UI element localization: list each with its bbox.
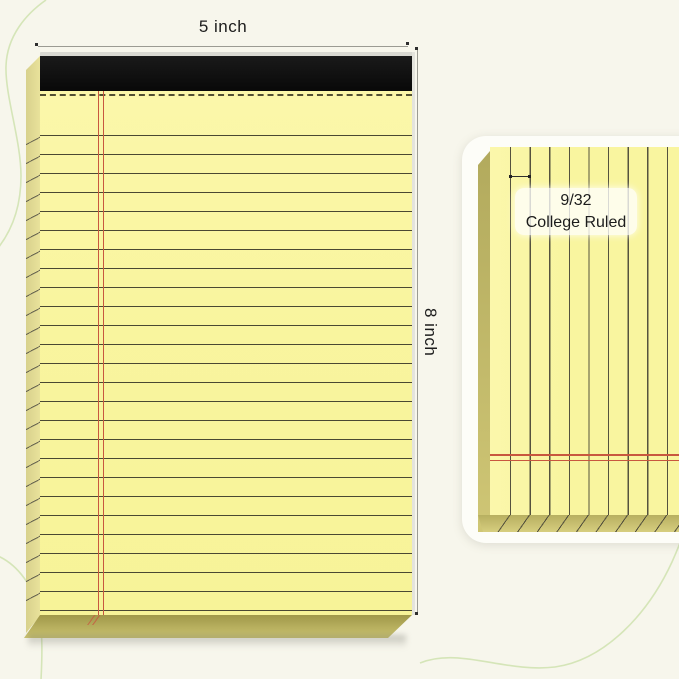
- spacing-dimension-end-right: [528, 175, 531, 178]
- pad-shadow: [28, 635, 406, 648]
- margin-line-right: [103, 91, 105, 615]
- height-dimension-line: [417, 49, 418, 615]
- margin-line-left: [98, 91, 100, 615]
- width-dimension-label: 5 inch: [38, 17, 408, 37]
- ruling-fraction-text: 9/32: [515, 190, 637, 212]
- page-stack-rule-ticks: [26, 135, 40, 608]
- perforation-line: [40, 94, 412, 96]
- decor-curve-bottom-right: [420, 543, 679, 668]
- ruling-name-text: College Ruled: [515, 212, 637, 234]
- height-dimension-end-top: [415, 47, 418, 50]
- height-dimension-label: 8 inch: [420, 308, 440, 378]
- spacing-dimension-arrow: [508, 171, 532, 182]
- detail-margin-line: [490, 460, 679, 462]
- pad-left-page-stack-edge: [26, 56, 40, 633]
- detail-page-stack-edge: [478, 149, 490, 532]
- margin-line-wrap-ticks: [87, 615, 102, 625]
- product-image: 5 inch 8 inch: [0, 0, 679, 679]
- width-dimension-end-left: [35, 43, 38, 46]
- spacing-dimension-line: [510, 176, 530, 177]
- detail-paper: 9/32 College Ruled: [490, 147, 679, 515]
- spacing-dimension-end-left: [509, 175, 512, 178]
- detail-card: 9/32 College Ruled: [462, 136, 679, 543]
- ruling-label: 9/32 College Ruled: [515, 188, 637, 235]
- pad-front-page: [40, 91, 412, 615]
- detail-margin-line: [490, 454, 679, 456]
- pad-right-edge: [412, 52, 415, 615]
- width-dimension-end-right: [406, 42, 409, 45]
- detail-rule-wrap-ticks: [496, 515, 679, 532]
- ruled-lines: [40, 135, 412, 612]
- pad-binding-strip: [40, 56, 412, 91]
- height-dimension-end-bottom: [415, 612, 418, 615]
- detail-bottom-page-stack-edge: [478, 515, 679, 532]
- width-dimension-line: [38, 46, 408, 47]
